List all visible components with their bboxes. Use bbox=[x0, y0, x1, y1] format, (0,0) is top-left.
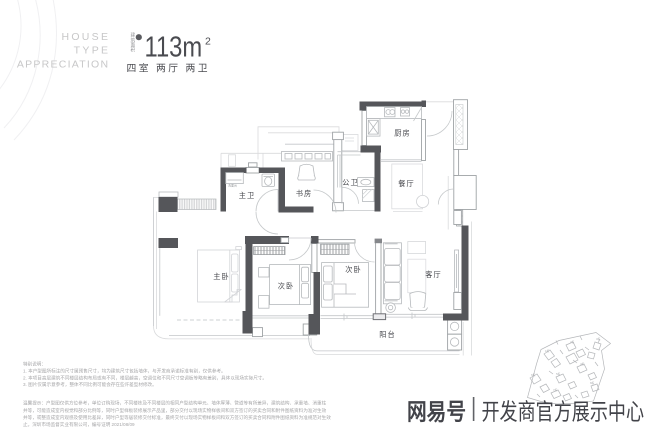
svg-text:2. 本项目高层建筑不同楼层结构布局或有不同，楼层越高，空调: 2. 本项目高层建筑不同楼层结构布局或有不同，楼层越高，空调位和不同尺寸空调板等… bbox=[23, 374, 267, 381]
svg-text:4栋: 4栋 bbox=[580, 362, 585, 366]
svg-text:公卫: 公卫 bbox=[342, 178, 358, 187]
svg-text:积: 积 bbox=[131, 47, 136, 54]
svg-text:阳台: 阳台 bbox=[379, 330, 395, 339]
svg-text:1栋: 1栋 bbox=[545, 349, 550, 353]
svg-text:2栋: 2栋 bbox=[570, 340, 575, 344]
svg-text:主卧: 主卧 bbox=[213, 272, 229, 281]
svg-text:2: 2 bbox=[205, 36, 211, 48]
svg-text:APPRECIATION: APPRECIATION bbox=[17, 59, 109, 71]
svg-text:8栋: 8栋 bbox=[590, 381, 595, 385]
svg-text:主卫: 主卫 bbox=[239, 191, 255, 200]
svg-text:餐厅: 餐厅 bbox=[398, 179, 414, 188]
svg-text:HOUSE: HOUSE bbox=[61, 31, 110, 43]
svg-text:113m: 113m bbox=[145, 30, 203, 63]
svg-text:5栋: 5栋 bbox=[556, 372, 561, 376]
svg-text:井等，或整造成室内观感及使用比差异，同时户型等居装修交付标准: 井等，或整造成室内观感及使用比差异，同时户型等居装修交付标准，最终交付以现场实物… bbox=[23, 414, 331, 421]
svg-text:洗面台: 洗面台 bbox=[228, 183, 237, 188]
svg-text:书房: 书房 bbox=[296, 189, 312, 198]
svg-text:7栋: 7栋 bbox=[553, 388, 558, 392]
svg-text:网易号: 网易号 bbox=[407, 399, 466, 425]
svg-text:3栋: 3栋 bbox=[596, 337, 601, 341]
svg-text:井等，可能造成室内视觉和部分比例等，同时户型样板装修展示产品: 井等，可能造成室内视觉和部分比例等，同时户型样板装修展示产品里，部分交付以现场实… bbox=[23, 407, 327, 414]
svg-text:客厅: 客厅 bbox=[425, 270, 441, 279]
svg-text:止。深圳市场监督实业有限公司，编号证明 2021/08/09: 止。深圳市场监督实业有限公司，编号证明 2021/08/09 bbox=[23, 421, 135, 428]
svg-text:1. 本户型图所标注的尺寸属预售尺寸，均为建筑尺寸包括墙体，: 1. 本户型图所标注的尺寸属预售尺寸，均为建筑尺寸包括墙体，与开发商承诺标准有别… bbox=[23, 367, 226, 374]
svg-text:特别说明：: 特别说明： bbox=[23, 361, 46, 368]
svg-text:温馨提示：户型图仅供方位参考，单位订购现场，不同楼栋及不同楼: 温馨提示：户型图仅供方位参考，单位订购现场，不同楼栋及不同楼层的相同户型结构单元… bbox=[23, 400, 327, 407]
svg-text:6栋: 6栋 bbox=[531, 373, 536, 377]
svg-text:3. 图片仅属示意参考，整体不同比例可能会存在些许差型材修改: 3. 图片仅属示意参考，整体不同比例可能会存在些许差型材修改。 bbox=[23, 381, 157, 388]
svg-text:TYPE: TYPE bbox=[74, 45, 111, 57]
svg-text:厨房: 厨房 bbox=[394, 129, 410, 138]
svg-text:次卧: 次卧 bbox=[278, 282, 294, 291]
svg-text:开发商官方展示中心: 开发商官方展示中心 bbox=[482, 399, 645, 425]
svg-text:次卧: 次卧 bbox=[345, 265, 361, 274]
svg-text:四室 两厅 两卫: 四室 两厅 两卫 bbox=[127, 62, 210, 75]
